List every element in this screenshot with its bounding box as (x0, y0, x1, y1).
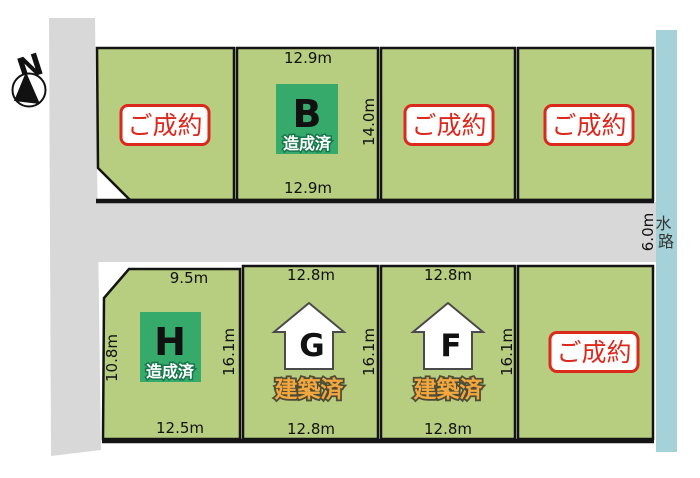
lot-map-svg: N ご成約 ご成約 ご成約 ご成約 B 造成済 H 造成済 G 建築済 F (0, 0, 700, 474)
sold-badge-label: ご成約 (551, 111, 626, 140)
built-label: 建築済 (414, 376, 484, 403)
sold-badge-bottom-4: ご成約 (550, 333, 638, 372)
road-horizontal (95, 202, 656, 262)
road-width-label: 6.0m (639, 213, 657, 251)
lot-H-marker: H 造成済 (140, 312, 201, 382)
waterway-label: 水 路 (655, 214, 676, 251)
lot-F-dim-top: 12.8m (424, 266, 472, 284)
graded-label: 造成済 (146, 362, 195, 381)
sold-badge-top-3: ご成約 (405, 106, 493, 145)
sold-badge-label: ご成約 (127, 111, 202, 140)
lot-G-dim-bottom: 12.8m (287, 420, 335, 438)
lot-B-dim-right: 14.0m (360, 98, 378, 146)
lot-F-letter: F (440, 328, 461, 364)
built-label: 建築済 (275, 376, 345, 403)
sold-badge-label: ご成約 (411, 111, 486, 140)
lot-G-letter: G (299, 328, 324, 364)
waterway-label-char: 水 路 (655, 214, 676, 251)
lot-G-dim-top: 12.8m (287, 266, 335, 284)
lot-H-dim-top: 9.5m (170, 269, 208, 287)
lot-H-letter: H (154, 320, 186, 364)
lot-B-dim-top: 12.9m (284, 49, 332, 67)
sold-badge-label: ご成約 (556, 338, 631, 367)
lot-H-dim-left: 10.8m (103, 334, 121, 382)
lot-F-dim-bottom: 12.8m (424, 420, 472, 438)
sold-badge-top-1: ご成約 (121, 106, 209, 145)
north-compass: N (13, 47, 48, 107)
lot-B-letter: B (293, 92, 322, 136)
lot-H-dim-bottom: 12.5m (156, 419, 204, 437)
lot-H-dim-right: 16.1m (220, 328, 238, 376)
lot-B-marker: B 造成済 (276, 84, 338, 154)
lot-G-dim-right: 16.1m (360, 328, 378, 376)
sold-badge-top-4: ご成約 (545, 106, 633, 145)
subdivision-map: N ご成約 ご成約 ご成約 ご成約 B 造成済 H 造成済 G 建築済 F (0, 0, 700, 474)
lot-F-dim-right: 16.1m (498, 328, 516, 376)
lot-B-dim-bottom: 12.9m (284, 179, 332, 197)
graded-label: 造成済 (283, 134, 332, 153)
road-vertical (49, 18, 101, 456)
